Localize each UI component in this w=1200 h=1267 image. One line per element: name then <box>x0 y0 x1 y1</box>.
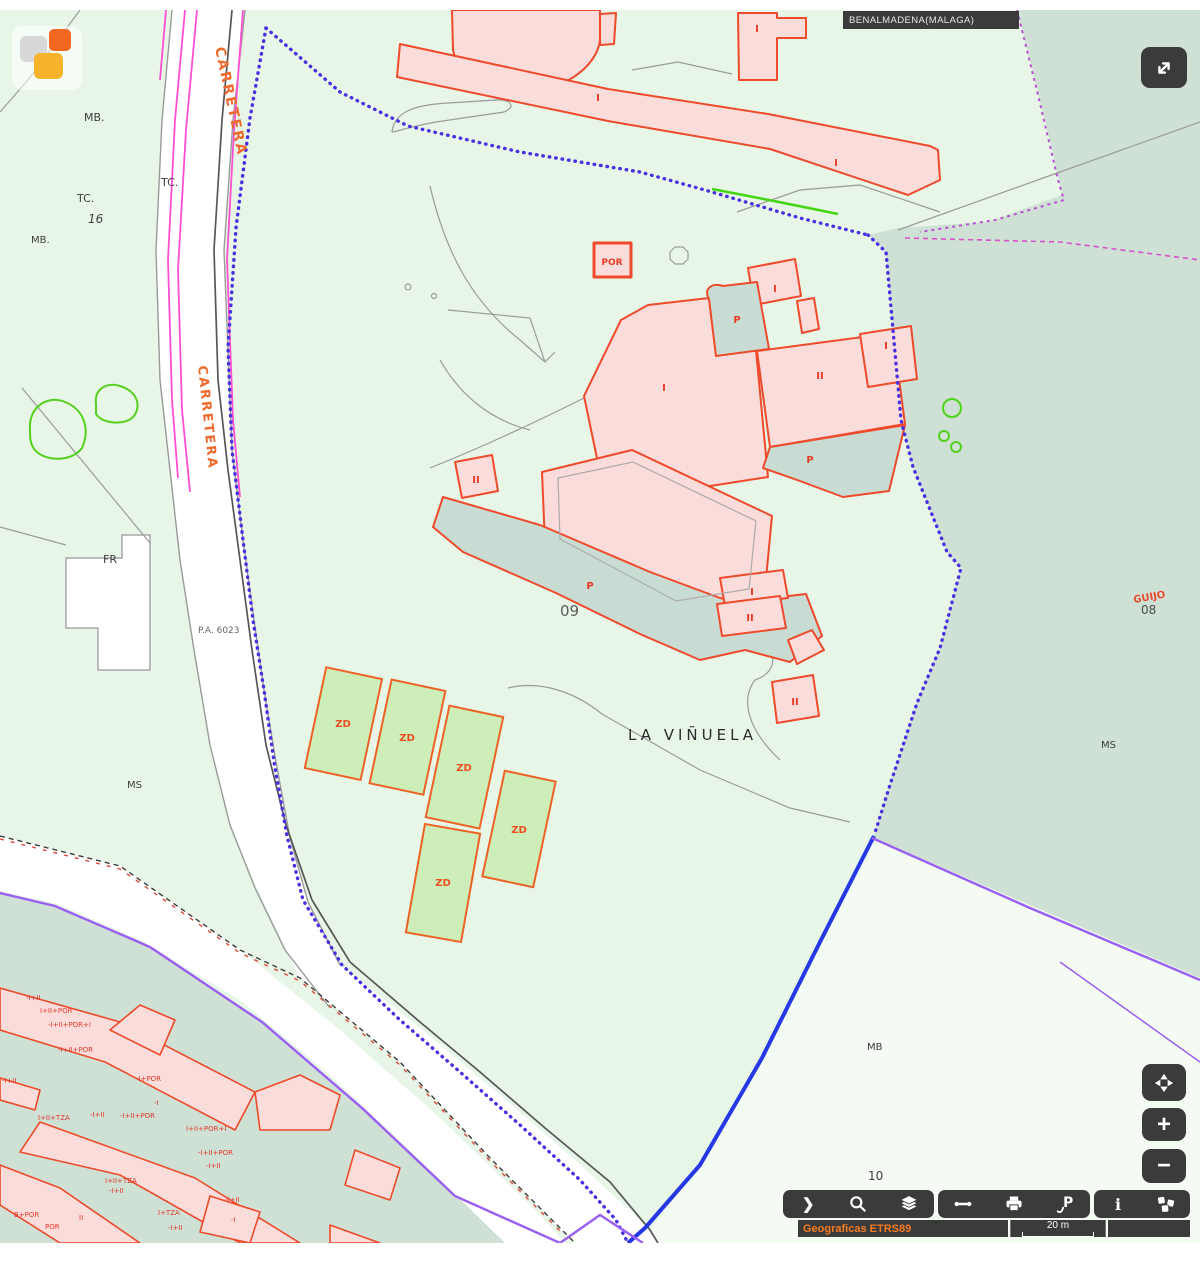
map-label: FR <box>103 553 117 566</box>
building-label: II <box>791 697 798 708</box>
map-canvas[interactable]: MB. TC. TC. 16 MB. FR MS P.A. 6023 09 LA… <box>0 10 1200 1243</box>
scale-bar: 20 m <box>1010 1220 1106 1237</box>
detail-label: -I+II <box>26 994 41 1002</box>
detail-label: POR <box>45 1223 60 1231</box>
map-label: 08 <box>1141 603 1156 617</box>
map-label: P.A. 6023 <box>198 626 240 636</box>
related-services-icon[interactable] <box>1153 1192 1179 1216</box>
buildings <box>397 10 940 723</box>
detail-label: -I+II <box>206 1162 221 1170</box>
layers-icon[interactable] <box>896 1192 922 1216</box>
toolbar-group-navigation: ❯ <box>783 1190 934 1218</box>
logo-square-orange <box>49 29 71 51</box>
building-label: II <box>472 475 479 486</box>
catastro-map-viewer: MB. TC. TC. 16 MB. FR MS P.A. 6023 09 LA… <box>0 0 1200 1267</box>
detail-label: I+II+POR <box>40 1007 73 1015</box>
scale-label: 20 m <box>1047 1220 1069 1231</box>
green-line-segment <box>712 189 838 214</box>
plus-icon: + <box>1157 1111 1171 1139</box>
statusbar-spacer <box>1108 1220 1190 1237</box>
detail-label: II <box>79 1214 83 1222</box>
building-label: P <box>586 581 593 592</box>
municipality-bar: BENALMADENA(MALAGA) <box>843 11 1019 29</box>
projection-label: Geograficas ETRS89 <box>803 1223 911 1235</box>
building <box>860 326 917 387</box>
zd-parcels <box>305 667 556 942</box>
fullscreen-button[interactable] <box>1141 47 1187 88</box>
logo-square-amber <box>34 53 63 79</box>
map-label: MB <box>867 1042 883 1053</box>
map-label: MS <box>1101 740 1116 751</box>
building <box>797 298 819 333</box>
parcel-number: 09 <box>560 602 579 620</box>
zone-label: ZD <box>511 825 527 836</box>
building-label: I <box>834 158 838 169</box>
minus-icon: − <box>1157 1152 1171 1180</box>
zone-label: ZD <box>335 719 351 730</box>
map-label: MB. <box>84 111 105 124</box>
detail-label: -I+II+POR <box>58 1046 93 1054</box>
pan-arrows-icon <box>1153 1072 1175 1094</box>
zone-label: ZD <box>456 763 472 774</box>
toolbar-group-info: i <box>1094 1190 1190 1218</box>
map-label: MS <box>127 780 142 791</box>
detail-label: -I+II <box>225 1196 240 1204</box>
chevron-right-icon[interactable]: ❯ <box>795 1192 821 1216</box>
detail-label: -I+II+POR <box>120 1112 155 1120</box>
building-label: I <box>884 341 888 352</box>
building-label: P <box>806 455 813 466</box>
expand-diagonal-icon <box>1153 57 1175 79</box>
measure-icon[interactable] <box>950 1192 976 1216</box>
detail-label: -I <box>154 1099 159 1107</box>
detail-label: -I <box>231 1216 236 1224</box>
building-label: I <box>755 24 759 35</box>
zone-label: ZD <box>435 878 451 889</box>
detail-label: -I+II <box>90 1111 105 1119</box>
print-icon[interactable] <box>1001 1192 1027 1216</box>
projection-cell: Geograficas ETRS89 <box>798 1220 1008 1237</box>
scale-line <box>1022 1232 1094 1237</box>
detail-label: -I+POR <box>136 1075 161 1083</box>
road-carretera <box>156 10 340 978</box>
zoom-in-button[interactable]: + <box>1142 1108 1186 1141</box>
detail-label: I+II+TZA <box>105 1177 137 1185</box>
detail-label: B+POR <box>14 1211 39 1219</box>
municipality-label: BENALMADENA(MALAGA) <box>849 15 974 26</box>
map-label: TC. <box>160 176 178 189</box>
detail-label: -I+II <box>2 1077 17 1085</box>
building <box>397 44 940 195</box>
detail-label: I+II+POR+I <box>186 1125 226 1133</box>
detail-label: I+TZA <box>158 1209 180 1217</box>
app-logo[interactable] <box>12 26 82 90</box>
set-pin-icon[interactable]: P <box>1052 1192 1078 1216</box>
toolbar-group-tools: P <box>938 1190 1090 1218</box>
detail-label: I+II+TZA <box>38 1114 70 1122</box>
building-label: I <box>750 587 754 598</box>
building <box>600 13 616 45</box>
detail-label: -I+II+POR+I <box>48 1021 91 1029</box>
detail-label: -I+II <box>109 1187 124 1195</box>
pan-button[interactable] <box>1142 1064 1186 1101</box>
map-label: 10 <box>868 1169 883 1183</box>
building <box>738 13 806 80</box>
map-label: 16 <box>88 212 104 226</box>
building-label: POR <box>601 258 622 268</box>
building-label: I <box>773 284 777 295</box>
building-label: P <box>733 315 740 326</box>
search-icon[interactable] <box>845 1192 871 1216</box>
svg-text:P: P <box>1063 1195 1073 1211</box>
zoom-out-button[interactable]: − <box>1142 1149 1186 1183</box>
zone-label: ZD <box>399 733 415 744</box>
building-label: I <box>662 383 666 394</box>
building-label: II <box>816 371 823 382</box>
detail-label: -I+II+POR <box>198 1149 233 1157</box>
info-icon[interactable]: i <box>1105 1192 1131 1216</box>
map-label: TC. <box>76 192 94 205</box>
building-label: I <box>596 93 600 104</box>
detail-label: -I+II <box>168 1224 183 1232</box>
map-label: MB. <box>31 235 50 246</box>
place-name: LA VIÑUELA <box>628 725 757 744</box>
building-label: II <box>746 613 753 624</box>
